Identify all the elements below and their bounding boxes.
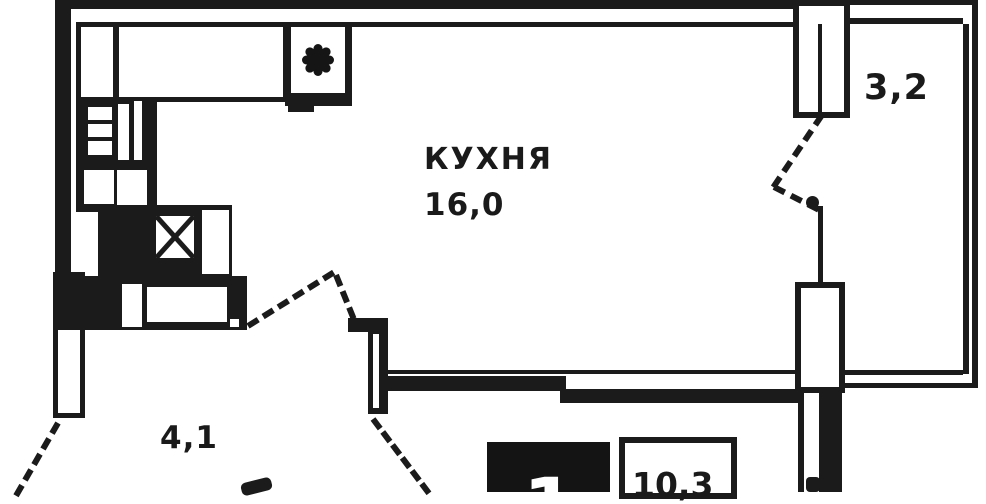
- wall-line-right: [798, 393, 804, 492]
- wall-right-lower: [819, 393, 842, 492]
- balcony-glazing-top-inner: [850, 18, 963, 24]
- shelf-slat: [88, 124, 112, 137]
- vent-shaft-icon: [152, 212, 198, 262]
- balcony-glazing-right-inner: [963, 24, 969, 374]
- room-count-value: 1: [523, 468, 576, 492]
- balcony-area: 3,2: [864, 68, 929, 108]
- counter-end-slot: [230, 319, 239, 327]
- living-area-box: 10,3: [619, 437, 737, 499]
- hall-door-swing-right: [371, 417, 432, 495]
- outer-wall-top: [55, 0, 797, 9]
- cabinet-slot: [118, 104, 129, 160]
- stove-burner-icon: [301, 43, 335, 77]
- balcony-glazing-top-outer: [850, 0, 978, 5]
- balcony-glazing-bottom-outer: [845, 383, 978, 388]
- cabinet-block: [76, 100, 157, 212]
- kitchen-door-swing: [333, 274, 356, 320]
- balcony-door-swing: [771, 113, 825, 188]
- balcony-window-line: [818, 206, 823, 286]
- jamb-core-line: [818, 24, 822, 112]
- kitchen-south-wall-step: [560, 389, 802, 403]
- hallway-area: 4,1: [160, 420, 218, 456]
- counter-slot: [122, 284, 142, 327]
- kitchen-door-swing: [246, 270, 335, 329]
- balcony-glazing-right-outer: [972, 0, 978, 388]
- kitchen-area: 16,0: [424, 187, 505, 223]
- kitchen-label: КУХНЯ: [424, 142, 553, 177]
- balcony-door-jamb-upper: [793, 0, 850, 118]
- cabinet-slot: [134, 101, 142, 160]
- kitchen-counter: [76, 22, 288, 102]
- clipped-marker: [240, 476, 273, 496]
- appliance-box: [84, 170, 114, 204]
- balcony-door-jamb-lower: [795, 282, 845, 393]
- kitchen-south-wall: [388, 376, 566, 391]
- shelf-slat: [88, 141, 112, 155]
- hinge-tab: [806, 477, 820, 492]
- sink-counter: [58, 276, 247, 330]
- vent-block: [98, 205, 232, 278]
- vent-side-box: [202, 210, 229, 274]
- stove: [285, 22, 352, 106]
- doorway-wall: [368, 318, 388, 414]
- stove-tab: [288, 104, 314, 112]
- hall-door-swing-left: [13, 422, 60, 498]
- living-area-value: 10,3: [632, 465, 713, 504]
- room-count-badge: 1: [487, 442, 610, 492]
- sink-box: [147, 287, 227, 322]
- balcony-glazing-bottom-inner: [845, 370, 963, 375]
- kitchen-south-wall-line: [388, 370, 797, 374]
- shelf-slat: [88, 107, 112, 120]
- doorway-wall-core: [373, 334, 379, 408]
- counter-divider: [113, 27, 119, 97]
- outer-wall-left: [55, 0, 71, 272]
- floor-plan: КУХНЯ 16,0 3,2 4,1 1 10,3: [0, 0, 986, 492]
